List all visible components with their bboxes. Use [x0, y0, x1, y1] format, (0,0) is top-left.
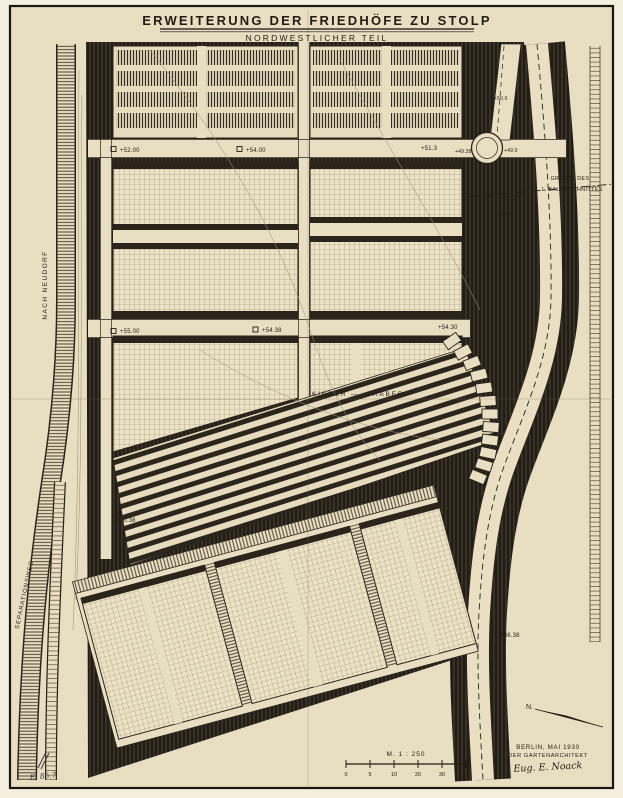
elevation-label: +46.38: [500, 633, 520, 639]
elevation-label: +54.30: [438, 325, 458, 331]
boundary-label-1: GRENZE DES: [550, 176, 589, 182]
scale-tick: 20: [415, 772, 421, 778]
map-subtitle: NORDWESTLICHER TEIL: [246, 33, 389, 43]
elevation-label: +49.38: [455, 149, 472, 155]
plan-sheet: ERWEITERUNG DER FRIEDHÖFE ZU STOLP NORDW…: [0, 0, 623, 798]
elevation-label: +50.38: [116, 518, 136, 524]
elevation-label: +50.0: [494, 96, 508, 102]
scale-tick: 10: [391, 772, 397, 778]
elevation-label: +48.0: [500, 211, 514, 217]
elevation-label: +51.3: [421, 146, 438, 152]
elevation-label: +55.00: [120, 329, 140, 335]
scale-tick: 5: [368, 772, 371, 778]
label-kinder: KINDER —: [312, 391, 359, 398]
imprint-role: DER GARTENARCHITEKT: [508, 753, 588, 759]
map-title: ERWEITERUNG DER FRIEDHÖFE ZU STOLP: [142, 13, 492, 28]
scale-tick: 0: [344, 772, 347, 778]
grave-blocks-top: [113, 46, 462, 138]
elevation-label: +52.00: [120, 148, 140, 154]
boundary-label-2: 1. BAUABSCHNITTES: [541, 187, 603, 193]
elevation-label: +54.00: [246, 148, 266, 154]
plaza-circle: [472, 133, 503, 164]
north-label: N.: [526, 704, 533, 711]
elevation-label: +54.38: [262, 328, 282, 334]
road-label-nach-neudorf: NACH NEUDORF: [42, 250, 49, 319]
scale-tick: 30: [439, 772, 445, 778]
elevation-label: +49.0: [504, 148, 518, 154]
label-graeber: GRÄBER: [366, 390, 404, 398]
grave-blocks-middle: [113, 162, 462, 318]
scale-label: M. 1 : 250: [387, 751, 426, 758]
imprint-city-date: BERLIN, MAI 1930: [516, 744, 579, 751]
plan-drawing: ERWEITERUNG DER FRIEDHÖFE ZU STOLP NORDW…: [0, 0, 623, 798]
right-boundary-strip: [590, 46, 600, 642]
scale-tick: 40: [463, 772, 469, 778]
